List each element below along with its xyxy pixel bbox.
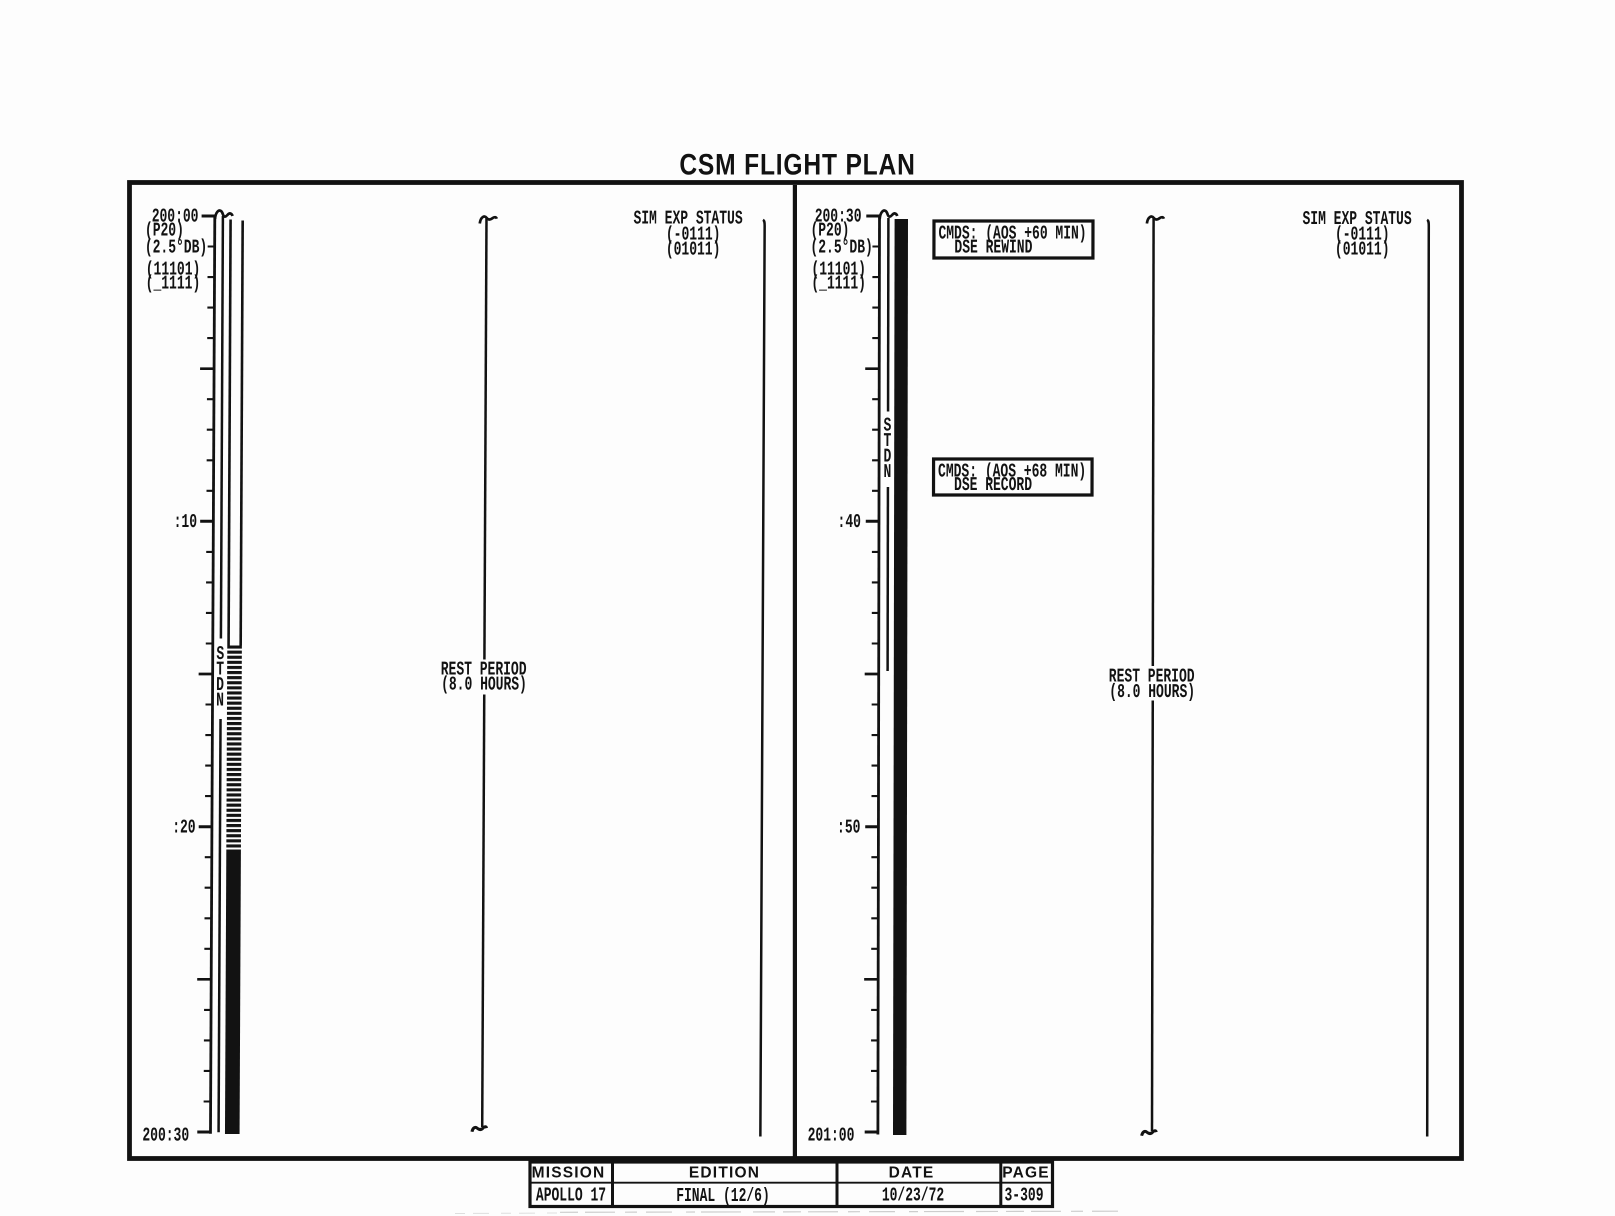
svg-text:200:30: 200:30 [142,1124,189,1146]
svg-text:DSE REWIND: DSE REWIND [954,236,1032,258]
svg-text:(2.5°DB): (2.5°DB) [810,236,872,258]
svg-text:FINAL (12/6): FINAL (12/6) [676,1185,770,1207]
svg-text:10/23/72: 10/23/72 [882,1184,944,1206]
svg-text::20: :20 [172,816,196,838]
svg-text:PAGE: PAGE [1002,1165,1050,1182]
svg-text:3-309: 3-309 [1005,1184,1044,1206]
svg-text:N: N [216,689,224,711]
svg-text:N: N [883,461,891,483]
svg-text:(_1111): (_1111) [146,272,201,294]
svg-text:(01011): (01011) [666,238,721,260]
svg-text:EDITION: EDITION [689,1165,760,1182]
svg-text:(_1111): (_1111) [811,272,866,294]
svg-text:DSE RECORD: DSE RECORD [954,474,1032,496]
svg-text:(01011): (01011) [1335,238,1390,260]
svg-text:DATE: DATE [889,1165,935,1182]
svg-text:(8.0 HOURS): (8.0 HOURS) [441,673,527,695]
svg-text::40: :40 [838,511,861,533]
svg-text:(2.5°DB): (2.5°DB) [145,236,207,258]
svg-text:APOLLO 17: APOLLO 17 [536,1184,606,1206]
svg-text:CSM FLIGHT PLAN: CSM FLIGHT PLAN [679,147,915,181]
svg-text::50: :50 [837,816,860,838]
svg-text:201:00: 201:00 [808,1124,855,1146]
svg-text:MISSION: MISSION [532,1165,606,1182]
svg-text::10: :10 [174,511,198,533]
svg-text:(8.0 HOURS): (8.0 HOURS) [1109,681,1195,703]
